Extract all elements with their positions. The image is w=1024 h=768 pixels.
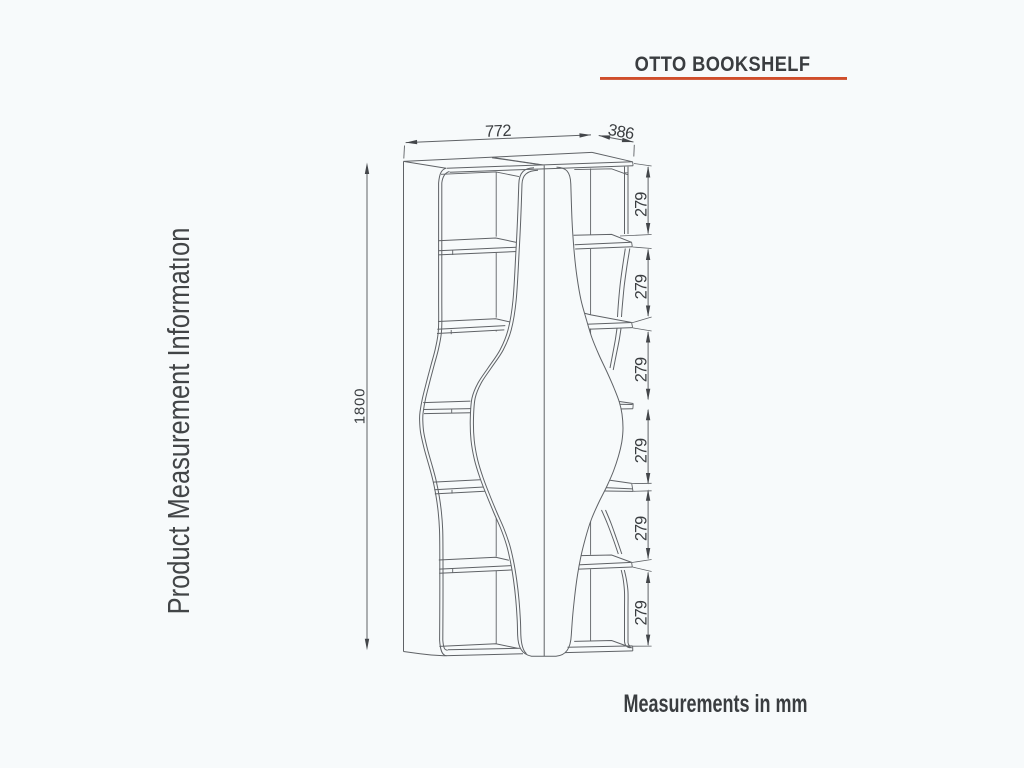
svg-text:772: 772: [485, 122, 512, 141]
svg-text:Product Measurement Informatıo: Product Measurement Informatıon: [162, 228, 195, 615]
svg-text:Measurements in mm: Measurements in mm: [624, 689, 808, 718]
svg-text:279: 279: [632, 600, 650, 625]
svg-text:279: 279: [632, 192, 650, 217]
svg-text:1800: 1800: [351, 388, 368, 425]
svg-text:279: 279: [632, 516, 650, 541]
svg-text:OTTO BOOKSHELF: OTTO BOOKSHELF: [635, 52, 811, 76]
svg-text:279: 279: [632, 274, 650, 299]
svg-text:279: 279: [632, 438, 650, 463]
svg-text:279: 279: [632, 357, 650, 382]
